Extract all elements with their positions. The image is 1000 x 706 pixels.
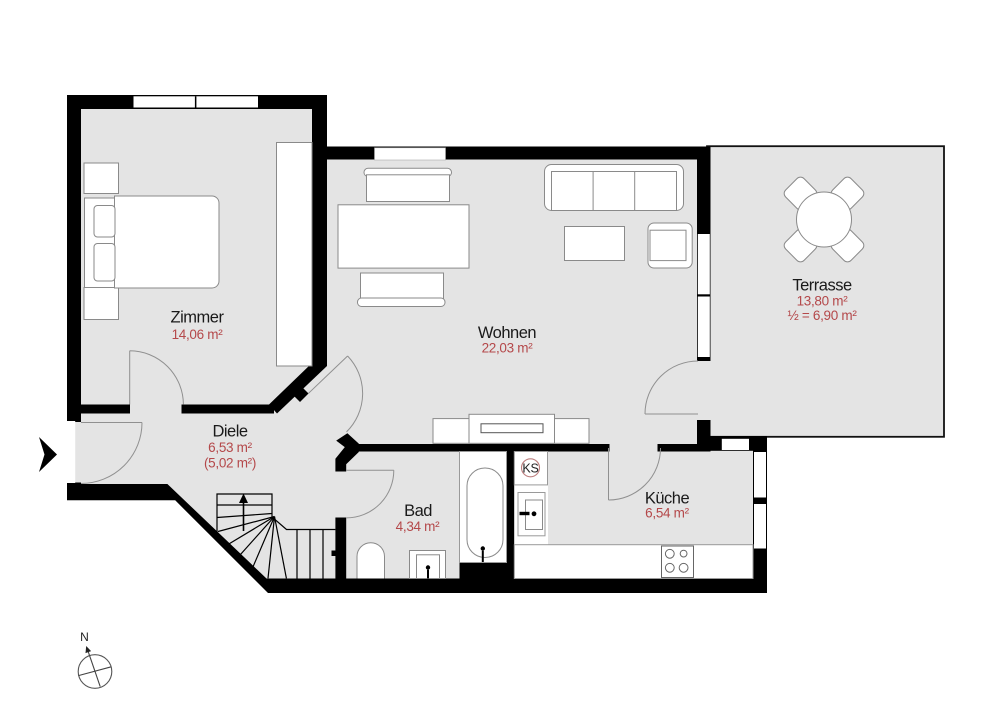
svg-text:13,80 m²: 13,80 m² [797,294,849,309]
svg-text:N: N [80,630,89,644]
svg-text:22,03 m²: 22,03 m² [482,341,534,356]
svg-text:Bad: Bad [404,502,432,520]
svg-text:Zimmer: Zimmer [171,309,225,327]
svg-text:14,06 m²: 14,06 m² [172,327,224,342]
svg-text:6,54 m²: 6,54 m² [645,506,689,521]
svg-text:4,34 m²: 4,34 m² [396,519,440,534]
svg-text:(5,02 m²): (5,02 m²) [204,456,256,471]
svg-text:Wohnen: Wohnen [478,324,536,342]
svg-text:Terrasse: Terrasse [792,277,852,295]
svg-text:6,53 m²: 6,53 m² [208,440,252,455]
svg-text:Diele: Diele [212,423,247,441]
svg-text:½ = 6,90 m²: ½ = 6,90 m² [787,308,857,323]
svg-text:KS: KS [522,461,538,475]
